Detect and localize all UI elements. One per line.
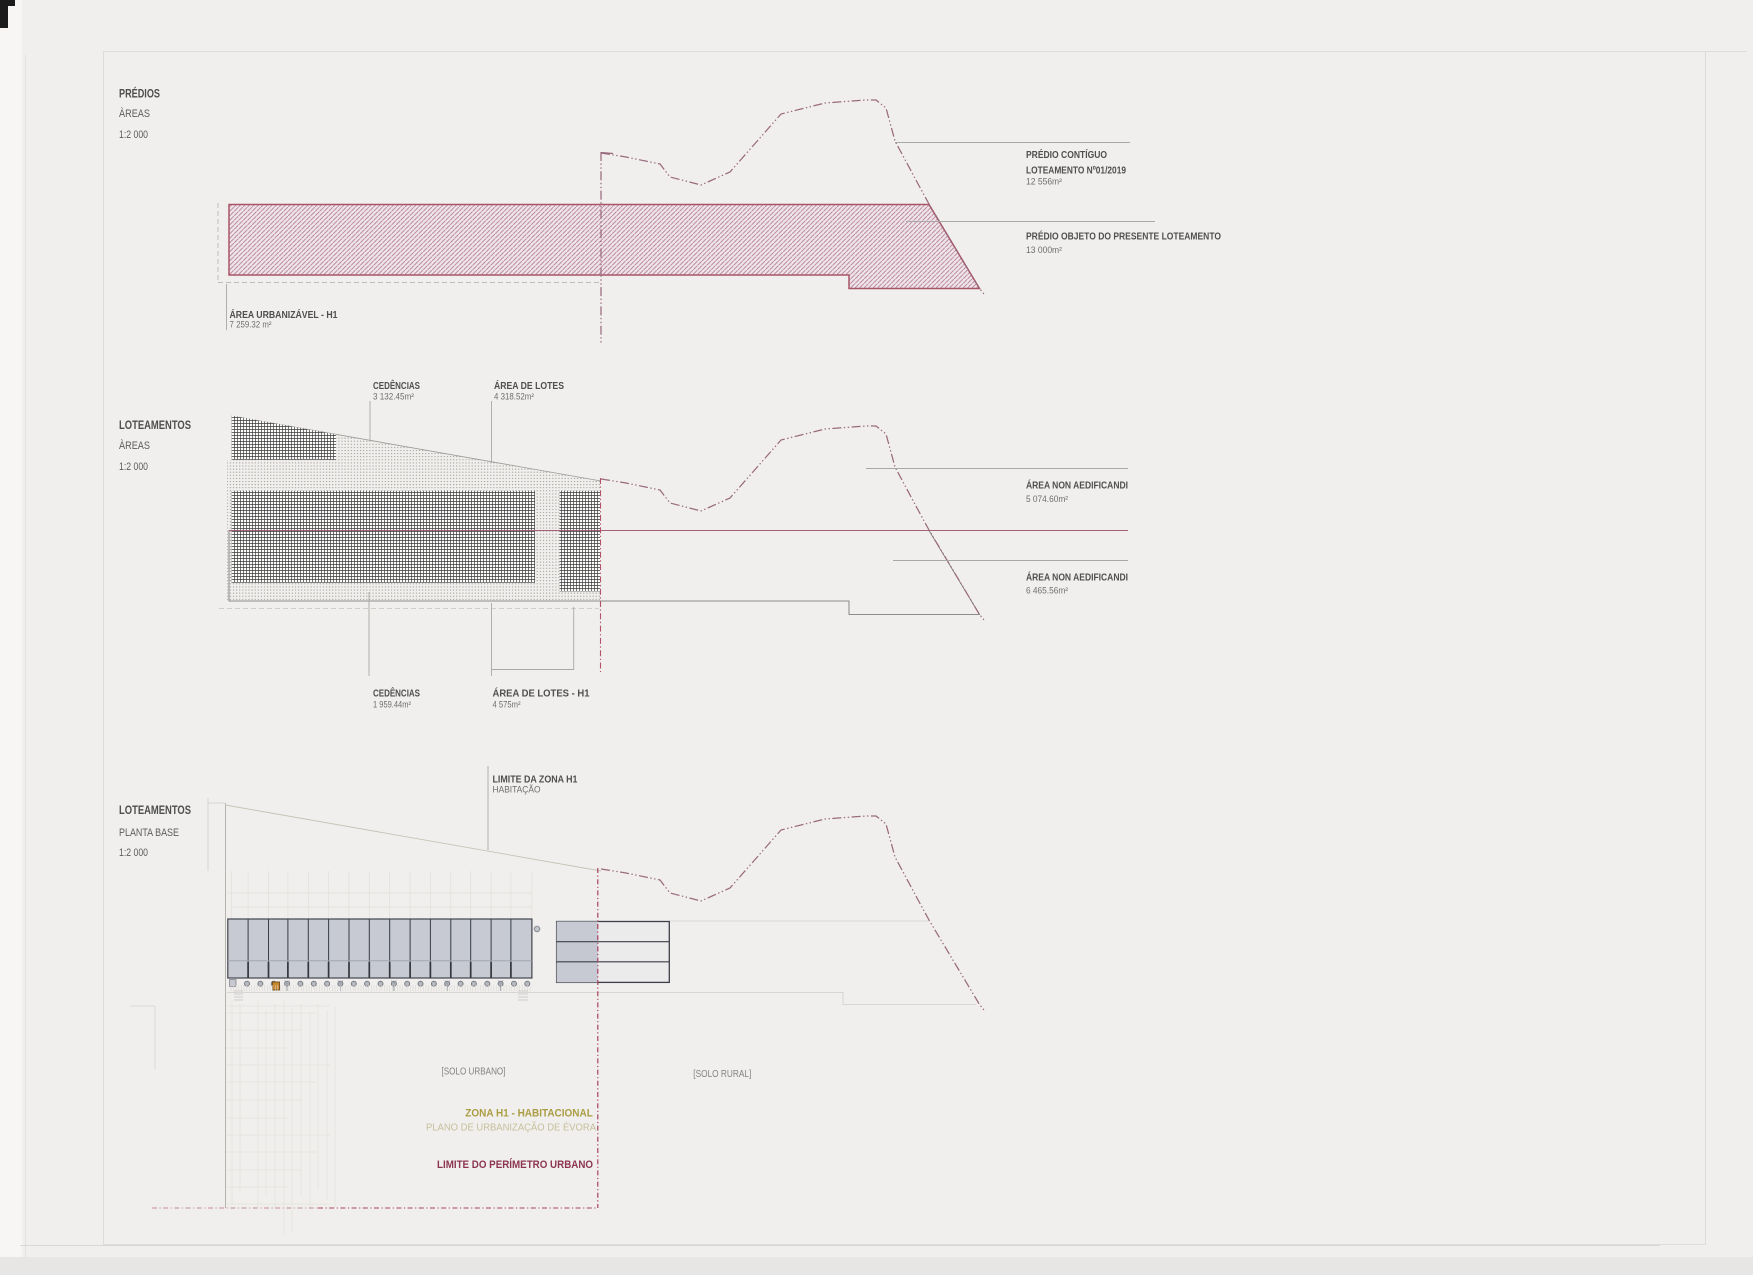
svg-text:ÁREA DE LOTES - H1: ÁREA DE LOTES - H1 xyxy=(493,687,590,700)
svg-text:CEDÊNCIAS: CEDÊNCIAS xyxy=(373,687,420,700)
svg-text:ÁREA DE LOTES: ÁREA DE LOTES xyxy=(494,379,564,392)
svg-text:[SOLO URBANO]: [SOLO URBANO] xyxy=(442,1066,506,1078)
svg-text:1:2 000: 1:2 000 xyxy=(119,129,148,141)
svg-text:LOTEAMENTOS: LOTEAMENTOS xyxy=(119,803,191,817)
svg-text:3 132.45m²: 3 132.45m² xyxy=(373,392,414,402)
svg-text:PLANTA BASE: PLANTA BASE xyxy=(119,827,179,839)
svg-text:13 000m²: 13 000m² xyxy=(1026,245,1062,255)
svg-text:CEDÊNCIAS: CEDÊNCIAS xyxy=(373,379,420,392)
svg-text:12 556m²: 12 556m² xyxy=(1026,177,1062,187)
svg-text:5 074.60m²: 5 074.60m² xyxy=(1026,494,1068,504)
svg-text:ÀREAS: ÀREAS xyxy=(119,439,150,452)
svg-text:7 259.32 m²: 7 259.32 m² xyxy=(230,320,272,330)
svg-text:PRÉDIO OBJETO DO PRESENTE LOTE: PRÉDIO OBJETO DO PRESENTE LOTEAMENTO xyxy=(1026,230,1221,243)
svg-text:LOTEAMENTO Nº01/2019: LOTEAMENTO Nº01/2019 xyxy=(1026,166,1126,177)
svg-text:4 575m²: 4 575m² xyxy=(493,699,521,709)
svg-text:PLANO DE URBANIZAÇÃO DE ÉVORA: PLANO DE URBANIZAÇÃO DE ÉVORA xyxy=(426,1121,596,1134)
svg-text:[SOLO RURAL]: [SOLO RURAL] xyxy=(693,1068,751,1080)
svg-text:LIMITE DO PERÍMETRO URBANO: LIMITE DO PERÍMETRO URBANO xyxy=(437,1158,593,1171)
svg-text:PRÉDIOS: PRÉDIOS xyxy=(119,86,160,101)
svg-text:LOTEAMENTOS: LOTEAMENTOS xyxy=(119,418,191,432)
svg-text:1 959.44m²: 1 959.44m² xyxy=(373,699,411,709)
svg-text:ÀREAS: ÀREAS xyxy=(119,107,150,120)
svg-text:ÁREA NON AEDIFICANDI: ÁREA NON AEDIFICANDI xyxy=(1026,479,1128,492)
svg-text:4 318.52m²: 4 318.52m² xyxy=(494,392,534,402)
svg-text:6 465.56m²: 6 465.56m² xyxy=(1026,586,1068,596)
svg-text:HABITAÇÃO: HABITAÇÃO xyxy=(493,785,541,795)
svg-text:ZONA H1 - HABITACIONAL: ZONA H1 - HABITACIONAL xyxy=(465,1108,593,1120)
svg-text:1:2 000: 1:2 000 xyxy=(119,847,148,859)
svg-text:PRÉDIO CONTÍGUO: PRÉDIO CONTÍGUO xyxy=(1026,148,1107,161)
svg-text:1:2 000: 1:2 000 xyxy=(119,461,148,473)
svg-text:ÁREA NON AEDIFICANDI: ÁREA NON AEDIFICANDI xyxy=(1026,571,1128,584)
